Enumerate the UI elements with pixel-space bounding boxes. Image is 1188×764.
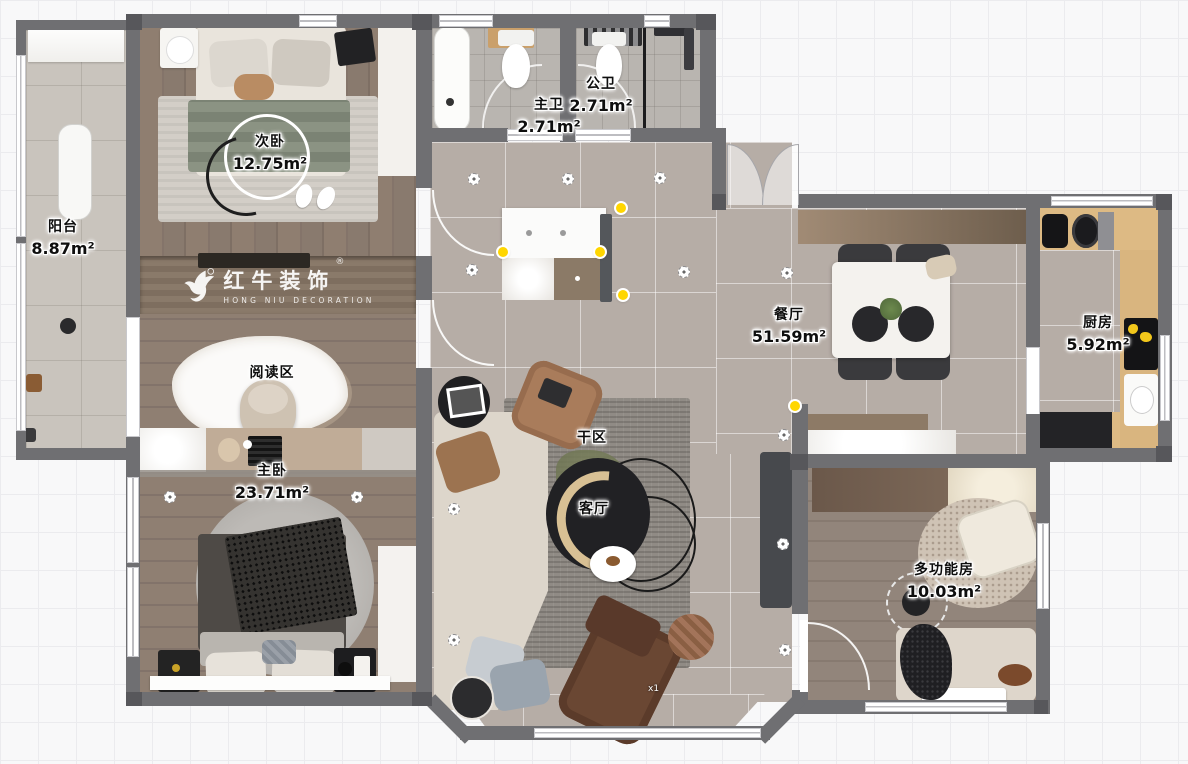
desk-extension	[362, 428, 416, 470]
window	[1161, 336, 1169, 420]
teddy-bear[interactable]	[218, 438, 240, 462]
room-name: 干区	[577, 427, 607, 447]
dining-stool[interactable]	[898, 306, 934, 342]
wall-corner	[1156, 194, 1172, 210]
headboard-console[interactable]	[150, 676, 390, 690]
foyer-side-panel[interactable]	[600, 214, 612, 302]
room-name: 阅读区	[250, 362, 295, 382]
window	[17, 244, 25, 430]
bathtub[interactable]	[434, 26, 470, 132]
selection-handle[interactable]	[618, 290, 628, 300]
floorplan-canvas: 红牛装饰® HONG NIU DECORATION	[0, 0, 1188, 764]
air-fryer[interactable]	[1072, 214, 1100, 248]
room-name: 客厅	[579, 498, 609, 518]
wardrobe-panel	[378, 26, 416, 176]
room-name: 主卧	[235, 460, 309, 480]
desk-monitor[interactable]	[334, 28, 376, 67]
ceiling-light-marker[interactable]	[678, 266, 690, 278]
logo-brand: 红牛装饰	[223, 269, 335, 293]
wall-corner	[126, 14, 142, 30]
wall-corner	[412, 14, 432, 30]
room-label-dining[interactable]: 餐厅 51.59m²	[752, 304, 826, 346]
ceiling-light-marker[interactable]	[448, 634, 460, 646]
room-area: 51.59m²	[752, 327, 826, 346]
window	[128, 568, 138, 656]
bowl-decor	[338, 662, 352, 676]
quantity-badge: x1	[648, 684, 659, 694]
shower-partition	[643, 22, 646, 134]
room-area: 2.71m²	[569, 96, 632, 115]
storage-cabinet[interactable]	[812, 468, 948, 512]
room-label-reading-area[interactable]: 阅读区	[250, 362, 295, 382]
room-label-balcony[interactable]: 阳台 8.87m²	[31, 216, 94, 258]
room-label-kitchen[interactable]: 厨房 5.92m²	[1066, 312, 1129, 354]
wall-corner	[1156, 446, 1172, 462]
window	[300, 16, 336, 26]
window	[645, 16, 669, 26]
door-leaf[interactable]	[800, 620, 808, 692]
room-label-guest-bathroom[interactable]: 公卫 2.71m²	[569, 73, 632, 115]
logo-subtitle: HONG NIU DECORATION	[223, 296, 374, 305]
wall	[16, 20, 128, 30]
room-label-second-bedroom[interactable]: 次卧 12.75m²	[233, 131, 307, 173]
room-name: 阳台	[31, 216, 94, 236]
window	[866, 703, 1006, 711]
bull-icon	[181, 267, 215, 303]
ceiling-light-marker[interactable]	[448, 503, 460, 515]
foyer-cabinet-top[interactable]	[502, 208, 606, 258]
ceiling-light-marker[interactable]	[468, 173, 480, 185]
wall	[630, 128, 716, 142]
floor-drain[interactable]	[60, 318, 76, 334]
plaid-pillow[interactable]	[262, 640, 296, 664]
stove-flower	[1140, 332, 1152, 342]
wall	[416, 14, 432, 188]
ceiling-light-marker[interactable]	[781, 267, 793, 279]
room-label-multipurpose[interactable]: 多功能房 10.03m²	[907, 559, 981, 601]
sideboard[interactable]	[798, 210, 1026, 244]
wardrobe-logo-band: 红牛装饰® HONG NIU DECORATION	[140, 256, 416, 314]
ceiling-light-marker[interactable]	[466, 264, 478, 276]
kitchen-counter-black[interactable]	[1040, 412, 1112, 448]
table-lamp[interactable]	[166, 36, 194, 64]
shower-column[interactable]	[684, 28, 694, 70]
wall-corner	[1034, 700, 1048, 714]
wall-corner	[712, 194, 726, 210]
wall	[416, 256, 432, 300]
table-plant	[880, 298, 902, 320]
bay-window	[535, 729, 760, 737]
beanbag-top	[248, 384, 288, 414]
croissant	[606, 556, 620, 566]
wall	[792, 454, 1048, 468]
sofa-pillow-gray[interactable]	[488, 657, 551, 712]
door-threshold[interactable]	[576, 130, 630, 140]
ceiling-light-marker[interactable]	[351, 491, 363, 503]
round-side-table[interactable]	[668, 614, 714, 660]
window	[17, 56, 25, 236]
room-label-living-room[interactable]: 客厅	[579, 498, 609, 518]
kitchen-sliding-door[interactable]	[1027, 348, 1039, 414]
room-name: 厨房	[1066, 312, 1129, 332]
storage-basket[interactable]	[26, 374, 42, 392]
ceiling-light-marker[interactable]	[562, 173, 574, 185]
nightstand-decor	[172, 664, 180, 672]
vanity-cabinet[interactable]	[136, 428, 206, 472]
cabinet-knob	[526, 230, 532, 236]
pillow[interactable]	[271, 39, 331, 88]
bolster-pillow[interactable]	[234, 74, 274, 100]
ceiling-light-marker[interactable]	[777, 538, 789, 550]
wall-corner	[126, 692, 142, 706]
radiator[interactable]	[58, 124, 92, 220]
ceiling-light-marker[interactable]	[779, 644, 791, 656]
cabinet-knob	[560, 230, 566, 236]
selection-handle[interactable]	[498, 247, 508, 257]
room-area: 23.71m²	[235, 483, 309, 502]
wall	[1026, 414, 1040, 454]
logo-registered: ®	[335, 257, 344, 267]
room-name: 公卫	[569, 73, 632, 93]
tv-console[interactable]	[760, 452, 792, 608]
balcony-sliding-door[interactable]	[127, 318, 139, 436]
cabinet-knob	[575, 276, 580, 281]
window	[440, 16, 492, 26]
window	[1052, 197, 1152, 205]
ceiling-light-marker[interactable]	[778, 429, 790, 441]
room-area: 5.92m²	[1066, 335, 1129, 354]
wall	[16, 448, 136, 460]
wall	[1158, 194, 1172, 462]
room-name: 餐厅	[752, 304, 826, 324]
wall	[430, 128, 508, 142]
ceiling-light-marker[interactable]	[654, 172, 666, 184]
wall-corner	[696, 14, 716, 30]
picture-frame	[446, 384, 486, 419]
sink[interactable]	[1130, 386, 1154, 414]
selection-handle[interactable]	[616, 203, 626, 213]
pillow[interactable]	[205, 651, 266, 697]
room-label-dry-area[interactable]: 干区	[577, 427, 607, 447]
knit-throw[interactable]	[224, 517, 358, 636]
hongniu-logo: 红牛装饰® HONG NIU DECORATION	[140, 256, 416, 314]
window	[1038, 524, 1048, 608]
room-name: 次卧	[233, 131, 307, 151]
room-area: 10.03m²	[907, 582, 981, 601]
room-area: 8.87m²	[31, 239, 94, 258]
foyer-cabinet-light[interactable]	[502, 258, 554, 300]
wall	[700, 14, 716, 142]
coffee-machine[interactable]	[1042, 214, 1068, 248]
window	[128, 478, 138, 562]
selection-handle[interactable]	[790, 401, 800, 411]
room-name: 多功能房	[907, 559, 981, 579]
wall	[792, 454, 808, 614]
room-label-master-bedroom[interactable]: 主卧 23.71m²	[235, 460, 309, 502]
wall	[126, 692, 430, 706]
mug[interactable]	[243, 440, 252, 449]
tv-counter-wood[interactable]	[804, 414, 928, 430]
wall-corner	[790, 454, 808, 470]
logo-text: 红牛装饰® HONG NIU DECORATION	[223, 265, 374, 305]
kitchen-appliance[interactable]	[1098, 212, 1114, 250]
ottoman[interactable]	[450, 676, 494, 720]
wardrobe-master	[378, 546, 416, 682]
room-area: 12.75m²	[233, 154, 307, 173]
selection-handle[interactable]	[595, 247, 605, 257]
wall-corner	[412, 692, 432, 706]
bathtub-drain	[446, 98, 454, 106]
pillow-brown[interactable]	[998, 664, 1032, 686]
wall	[1026, 208, 1040, 348]
wall	[416, 368, 432, 706]
room-area: 2.71m²	[517, 117, 580, 136]
ceiling-light-marker[interactable]	[164, 491, 176, 503]
